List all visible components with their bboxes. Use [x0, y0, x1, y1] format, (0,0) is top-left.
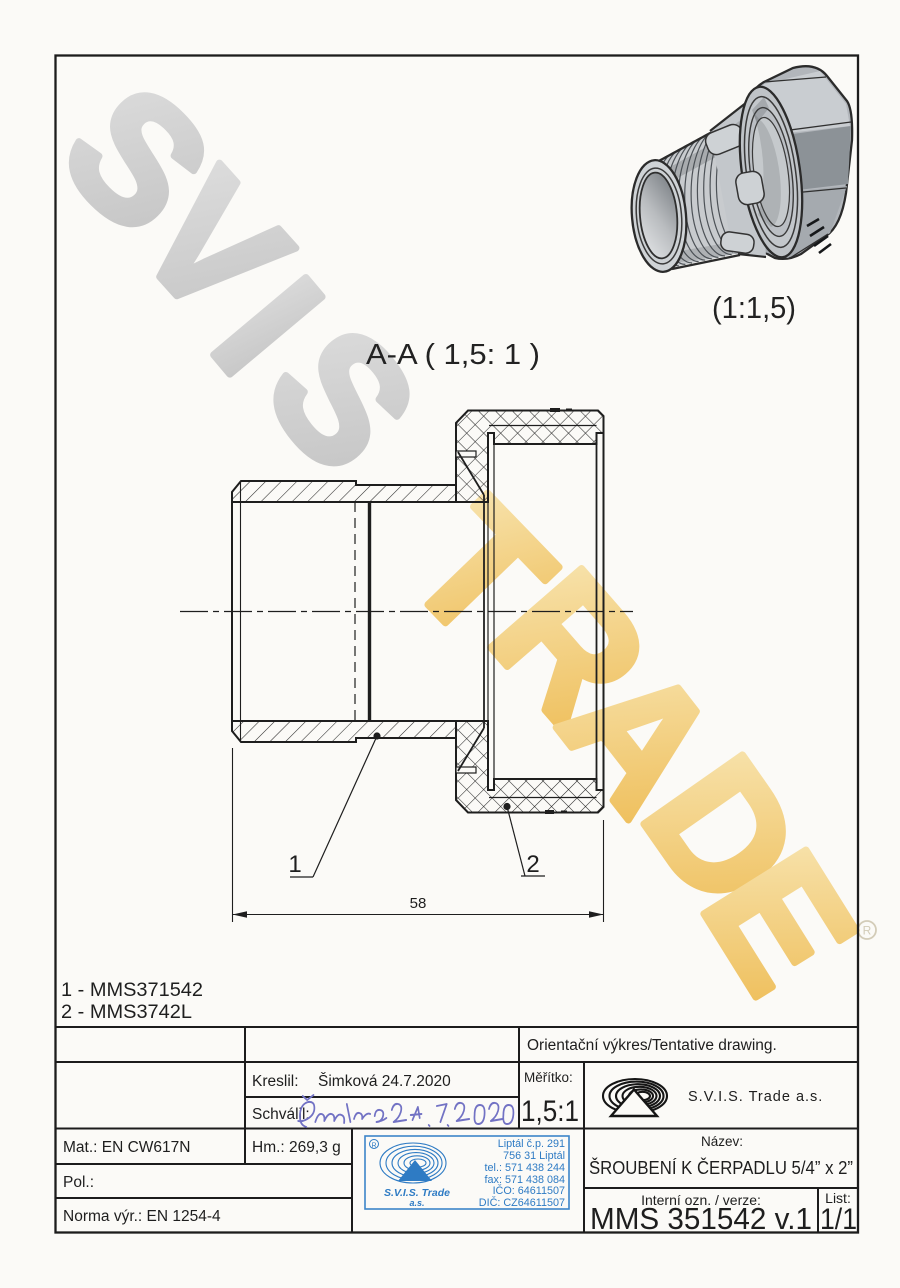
- svg-text:S.V.I.S. Trade a.s.: S.V.I.S. Trade a.s.: [688, 1089, 823, 1105]
- svg-text:A-A ( 1,5: 1 ): A-A ( 1,5: 1 ): [366, 339, 540, 371]
- svg-text:a.s.: a.s.: [409, 1198, 424, 1208]
- svg-text:1 - MMS371542: 1 - MMS371542: [61, 979, 203, 1001]
- svg-text:Měřítko:: Měřítko:: [524, 1070, 573, 1085]
- svg-text:2: 2: [526, 851, 539, 878]
- svg-text:Kreslil:: Kreslil:: [252, 1073, 299, 1090]
- svg-text:1,5:1: 1,5:1: [521, 1095, 579, 1128]
- svg-text:Norma výr.: EN 1254-4: Norma výr.: EN 1254-4: [63, 1208, 221, 1225]
- svg-text:DIČ: CZ64611507: DIČ: CZ64611507: [479, 1196, 565, 1209]
- svg-text:Šimková 24.7.2020: Šimková 24.7.2020: [318, 1073, 451, 1090]
- svg-text:MMS 351542 v.1: MMS 351542 v.1: [590, 1201, 812, 1236]
- svg-text:Hm.: 269,3 g: Hm.: 269,3 g: [252, 1139, 341, 1156]
- svg-text:R: R: [371, 1143, 376, 1150]
- svg-text:756 31 Liptál: 756 31 Liptál: [503, 1150, 565, 1162]
- svg-text:ŠROUBENÍ K ČERPADLU 5/4” x 2”: ŠROUBENÍ K ČERPADLU 5/4” x 2”: [589, 1157, 853, 1178]
- svg-text:R: R: [863, 924, 872, 938]
- svg-text:Orientační výkres/Tentative dr: Orientační výkres/Tentative drawing.: [527, 1037, 777, 1054]
- svg-text:58: 58: [410, 895, 427, 912]
- svg-text:Mat.: EN CW617N: Mat.: EN CW617N: [63, 1139, 190, 1156]
- svg-text:Pol.:: Pol.:: [63, 1174, 94, 1191]
- svg-text:Liptál č.p. 291: Liptál č.p. 291: [498, 1138, 565, 1150]
- svg-text:Název:: Název:: [701, 1134, 743, 1149]
- svg-text:2 - MMS3742L: 2 - MMS3742L: [61, 1001, 192, 1023]
- svg-text:tel.: 571 438 244: tel.: 571 438 244: [485, 1162, 565, 1174]
- svg-text:(1:1,5): (1:1,5): [712, 290, 796, 325]
- svg-text:1: 1: [288, 851, 301, 878]
- svg-text:IČO: 64611507: IČO: 64611507: [493, 1184, 565, 1197]
- svg-text:1/1: 1/1: [820, 1203, 857, 1236]
